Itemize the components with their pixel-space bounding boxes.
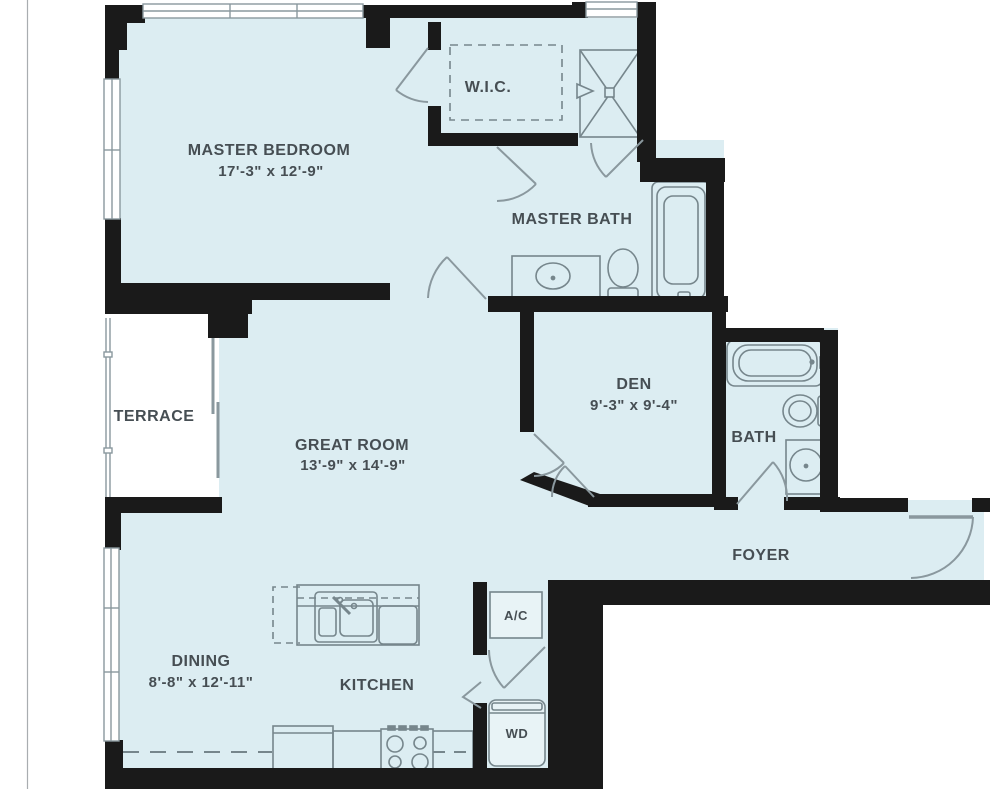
floor-plan-page: MASTER BEDROOM 17'-3" x 12'-9" W.I.C. MA… — [0, 0, 995, 789]
bath-label: BATH — [731, 429, 776, 446]
dining-dims: 8'-8" x 12'-11" — [149, 674, 254, 691]
exterior-cutout — [603, 603, 995, 789]
window-shower — [586, 2, 637, 17]
ac-label: A/C — [504, 608, 528, 623]
terrace-deck — [103, 313, 219, 500]
den-dims: 9'-3" x 9'-4" — [590, 397, 678, 414]
terrace-label: TERRACE — [114, 408, 195, 425]
kitchen-label: KITCHEN — [340, 677, 415, 694]
floor-plan-drawing: MASTER BEDROOM 17'-3" x 12'-9" W.I.C. MA… — [0, 0, 995, 789]
window-master-top — [143, 4, 363, 18]
wd-label: WD — [506, 726, 529, 741]
den-label: DEN — [616, 376, 651, 393]
wic-label: W.I.C. — [465, 79, 512, 96]
master-bedroom-label: MASTER BEDROOM — [188, 142, 351, 159]
window-dining-left — [104, 548, 119, 741]
master-bath-label: MASTER BATH — [512, 211, 633, 228]
great-room-dims: 13'-9" x 14'-9" — [300, 457, 406, 474]
great-room-label: GREAT ROOM — [295, 437, 409, 454]
window-master-left — [104, 79, 120, 219]
foyer-label: FOYER — [732, 547, 790, 564]
master-bedroom-dims: 17'-3" x 12'-9" — [218, 163, 324, 180]
dining-label: DINING — [172, 653, 231, 670]
range — [381, 726, 433, 772]
